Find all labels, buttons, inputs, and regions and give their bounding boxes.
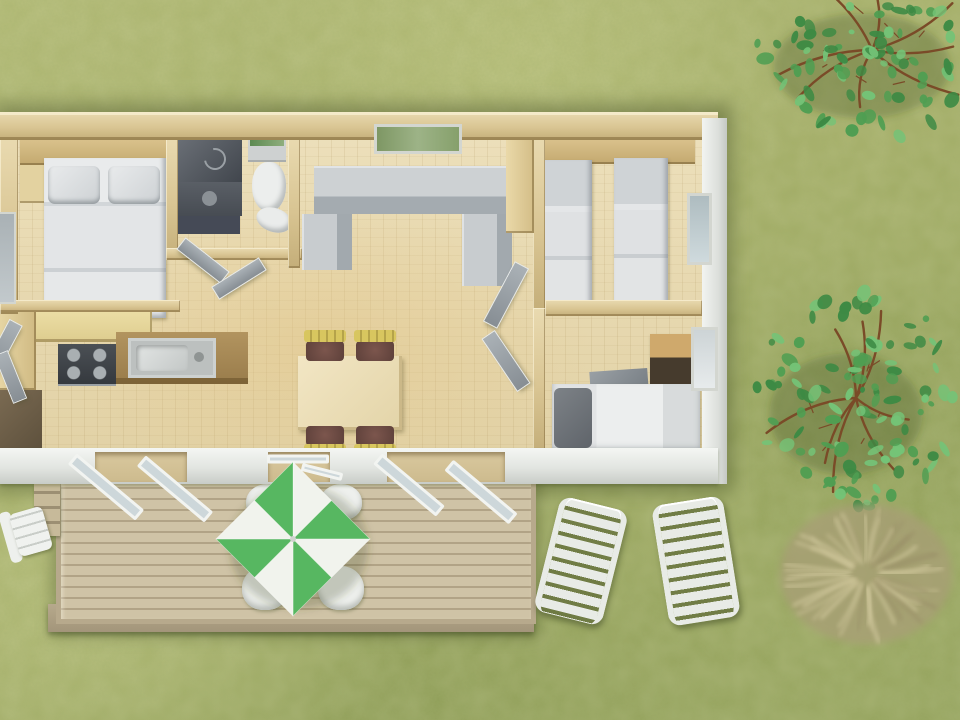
deck [56, 462, 536, 624]
deck-chair [242, 566, 288, 610]
sofa-arm [462, 214, 512, 286]
door-opening [387, 452, 505, 482]
scene [0, 0, 960, 720]
wall [545, 300, 702, 316]
dining-chair [304, 330, 346, 362]
vanity-sink [178, 182, 242, 216]
sofa-arm [302, 214, 352, 270]
single-bed [540, 160, 592, 310]
deck-chair [320, 484, 362, 520]
wall [533, 308, 545, 452]
door-opening [95, 452, 187, 482]
gas-hob [58, 344, 116, 384]
pillow [48, 166, 100, 204]
deck-chair [318, 566, 364, 610]
exterior-wall-top [0, 112, 718, 140]
pillow [108, 166, 160, 204]
sofa [314, 166, 512, 214]
wardrobe [506, 133, 534, 233]
door-opening [268, 452, 330, 482]
single-bed [614, 158, 668, 310]
window [694, 330, 715, 388]
pillow [554, 388, 592, 448]
window [690, 196, 709, 262]
deck-chair [246, 484, 288, 520]
exterior-wall-right [702, 118, 727, 484]
wall [533, 136, 545, 312]
toilet-cistern [248, 146, 286, 162]
wall [166, 138, 178, 260]
wall [0, 300, 180, 312]
shower [178, 138, 242, 182]
dining-table [298, 356, 402, 430]
nightstand [20, 165, 46, 203]
wall [288, 138, 300, 268]
kitchen-sink [128, 338, 216, 378]
window [0, 214, 14, 302]
bedside-cabinet [650, 334, 694, 386]
window [377, 127, 459, 151]
dining-chair [354, 330, 396, 362]
bath-mat [178, 216, 240, 234]
toilet [252, 162, 286, 212]
